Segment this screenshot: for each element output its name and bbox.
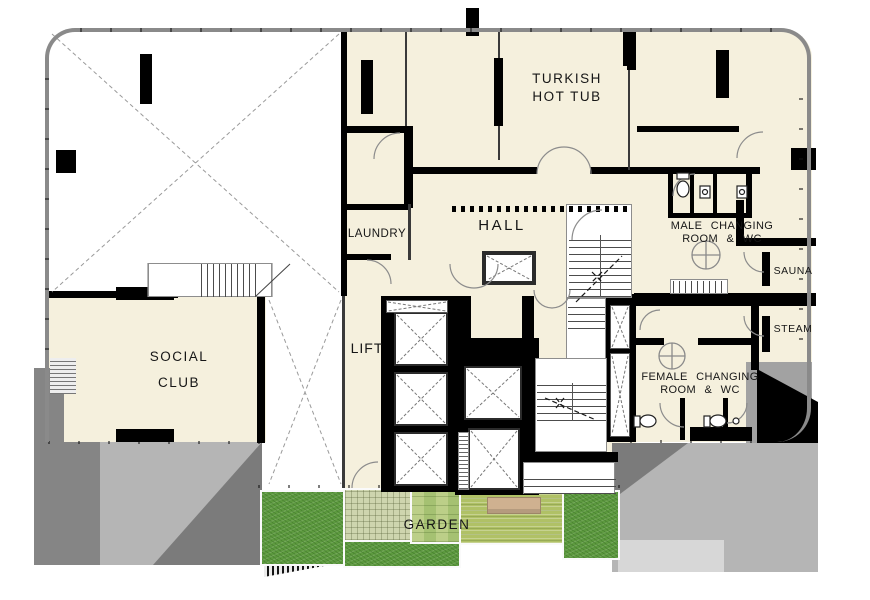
room-label-steam: STEAM <box>774 323 813 335</box>
room-label-turkish-hot-tub: TURKISH HOT TUB <box>532 70 602 106</box>
label-line: STEAM <box>774 323 813 335</box>
void-cross-lines <box>52 34 341 484</box>
label-line: HOT TUB <box>532 88 602 106</box>
label-line: TURKISH <box>532 70 602 88</box>
stair-cut-lines <box>256 264 290 296</box>
label-line: HALL <box>478 217 526 234</box>
shower-icon <box>659 241 720 369</box>
urinal-icon <box>700 186 747 198</box>
label-line: CLUB <box>150 370 209 396</box>
label-line: ROOM & WC <box>641 384 758 397</box>
label-line: MALE CHANGING <box>671 220 774 233</box>
shaft-cross-lines <box>388 256 628 487</box>
plan-linework <box>0 0 870 600</box>
floor-plan: TURKISH HOT TUB HALL LAUNDRY LIFT SOCIAL… <box>0 0 870 600</box>
room-label-hall: HALL <box>478 217 526 234</box>
label-line: SOCIAL <box>150 344 209 370</box>
label-line: GARDEN <box>404 517 471 532</box>
room-label-sauna: SAUNA <box>774 265 813 277</box>
room-label-social-club: SOCIAL CLUB <box>150 344 209 396</box>
label-line: FEMALE CHANGING <box>641 371 758 384</box>
room-label-lift: LIFT <box>351 340 384 356</box>
room-label-garden: GARDEN <box>404 517 471 532</box>
label-line: LIFT <box>351 340 384 356</box>
room-label-laundry: LAUNDRY <box>348 228 406 240</box>
door-swing-arcs <box>148 132 764 488</box>
room-label-female-changing: FEMALE CHANGING ROOM & WC <box>641 371 758 397</box>
label-line: LAUNDRY <box>348 228 406 240</box>
room-label-male-changing: MALE CHANGING ROOM & WC <box>671 220 774 246</box>
stair-direction-arrows <box>545 256 622 420</box>
label-line: ROOM & WC <box>671 233 774 246</box>
label-line: SAUNA <box>774 265 813 277</box>
